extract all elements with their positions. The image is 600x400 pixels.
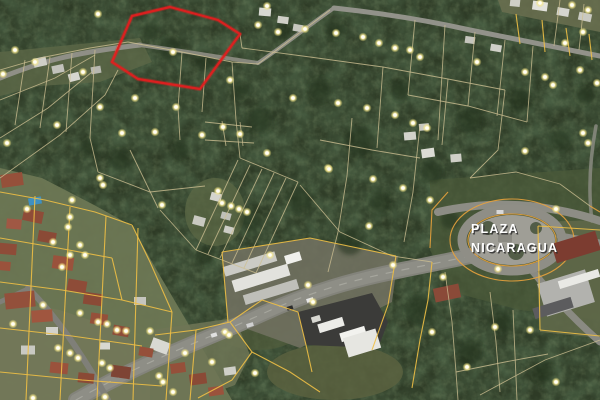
tree-canopy — [532, 361, 554, 383]
light-marker — [391, 263, 395, 267]
light-marker — [523, 149, 527, 153]
light-marker — [1, 72, 5, 76]
light-marker — [133, 96, 137, 100]
light-marker — [371, 177, 375, 181]
light-marker — [60, 265, 64, 269]
light-marker — [11, 322, 15, 326]
light-marker — [245, 210, 249, 214]
building — [100, 343, 110, 350]
light-marker — [171, 390, 175, 394]
light-marker — [570, 3, 574, 7]
tree-canopy — [171, 141, 189, 159]
light-marker — [161, 380, 165, 384]
light-marker — [41, 303, 45, 307]
light-marker — [115, 328, 119, 332]
light-marker — [174, 105, 178, 109]
light-marker — [334, 31, 338, 35]
satellite-map-screenshot: PLAZA NICARAGUA PLAZA NICARAGUA — [0, 0, 600, 400]
light-marker — [228, 78, 232, 82]
tree-canopy — [196, 246, 214, 264]
light-marker — [430, 330, 434, 334]
map-svg: PLAZA NICARAGUA PLAZA NICARAGUA — [0, 0, 600, 400]
ground-patch — [267, 344, 403, 400]
building — [170, 362, 186, 374]
tree-canopy — [457, 339, 483, 365]
light-marker — [578, 68, 582, 72]
light-marker — [377, 41, 381, 45]
building — [497, 210, 504, 214]
building — [49, 362, 68, 375]
light-marker — [124, 329, 128, 333]
light-marker — [98, 176, 102, 180]
light-marker — [200, 133, 204, 137]
building — [0, 261, 11, 271]
light-marker — [291, 96, 295, 100]
building — [421, 148, 435, 159]
light-marker — [393, 46, 397, 50]
light-marker — [268, 253, 272, 257]
light-marker — [78, 243, 82, 247]
tree-canopy — [369, 191, 391, 213]
light-marker — [68, 253, 72, 257]
light-marker — [13, 48, 17, 52]
plaza-tree — [530, 222, 542, 234]
light-marker — [51, 240, 55, 244]
light-marker — [586, 8, 590, 12]
light-marker — [538, 1, 542, 5]
light-marker — [103, 395, 107, 399]
light-marker — [66, 225, 70, 229]
tree-canopy — [550, 130, 570, 150]
light-marker — [475, 60, 479, 64]
light-marker — [327, 167, 331, 171]
light-marker — [229, 204, 233, 208]
building — [224, 366, 237, 376]
light-marker — [105, 322, 109, 326]
light-marker — [98, 105, 102, 109]
light-marker — [237, 207, 241, 211]
light-marker — [393, 113, 397, 117]
tree-canopy — [142, 22, 158, 38]
light-marker — [216, 189, 220, 193]
light-marker — [441, 275, 445, 279]
light-marker — [425, 126, 429, 130]
light-marker — [336, 101, 340, 105]
building — [31, 309, 53, 322]
light-marker — [157, 374, 161, 378]
light-marker — [160, 203, 164, 207]
light-marker — [543, 75, 547, 79]
light-marker — [303, 27, 307, 31]
light-marker — [56, 346, 60, 350]
light-marker — [401, 186, 405, 190]
building — [0, 243, 17, 255]
light-marker — [465, 365, 469, 369]
light-marker — [418, 55, 422, 59]
light-marker — [76, 356, 80, 360]
light-marker — [253, 371, 257, 375]
light-marker — [361, 35, 365, 39]
light-marker — [96, 12, 100, 16]
light-marker — [367, 224, 371, 228]
light-marker — [311, 300, 315, 304]
tree-canopy — [576, 86, 594, 104]
light-marker — [551, 83, 555, 87]
tree-canopy — [457, 107, 483, 133]
light-marker — [554, 207, 558, 211]
light-marker — [33, 60, 37, 64]
light-marker — [153, 130, 157, 134]
tree-canopy — [109, 149, 131, 171]
light-marker — [227, 333, 231, 337]
tree-canopy — [390, 80, 410, 100]
tree-canopy — [405, 295, 435, 325]
light-marker — [554, 380, 558, 384]
light-marker — [148, 329, 152, 333]
light-marker — [581, 30, 585, 34]
light-marker — [83, 253, 87, 257]
light-marker — [220, 201, 224, 205]
plaza-label-line1: PLAZA — [471, 222, 519, 236]
light-marker — [586, 141, 590, 145]
light-marker — [108, 366, 112, 370]
tree-canopy — [247, 107, 273, 133]
building — [450, 154, 462, 163]
light-marker — [306, 283, 310, 287]
light-marker — [265, 4, 269, 8]
light-marker — [581, 131, 585, 135]
light-marker — [221, 125, 225, 129]
light-marker — [100, 361, 104, 365]
tree-canopy — [287, 187, 313, 213]
plaza-label-line2: NICARAGUA — [471, 241, 558, 255]
light-marker — [411, 121, 415, 125]
tree-canopy — [308, 78, 332, 102]
tree-canopy — [421, 161, 443, 183]
light-marker — [210, 360, 214, 364]
light-marker — [96, 320, 100, 324]
light-marker — [171, 50, 175, 54]
building — [78, 372, 95, 384]
building — [6, 218, 22, 229]
light-marker — [493, 325, 497, 329]
light-marker — [428, 198, 432, 202]
light-marker — [68, 351, 72, 355]
light-marker — [101, 183, 105, 187]
light-marker — [365, 106, 369, 110]
light-marker — [276, 30, 280, 34]
light-marker — [5, 141, 9, 145]
light-marker — [68, 215, 72, 219]
light-marker — [120, 131, 124, 135]
light-marker — [183, 351, 187, 355]
building — [510, 0, 521, 7]
light-marker — [238, 132, 242, 136]
light-marker — [265, 151, 269, 155]
light-marker — [528, 328, 532, 332]
light-marker — [55, 123, 59, 127]
tree-canopy — [81, 139, 99, 157]
light-marker — [81, 70, 85, 74]
light-marker — [595, 81, 599, 85]
light-marker — [78, 311, 82, 315]
light-marker — [523, 70, 527, 74]
light-marker — [563, 41, 567, 45]
light-marker — [70, 198, 74, 202]
light-marker — [408, 48, 412, 52]
light-marker — [256, 23, 260, 27]
light-marker — [25, 207, 29, 211]
building — [404, 131, 417, 140]
light-marker — [496, 267, 500, 271]
light-marker — [31, 396, 35, 400]
